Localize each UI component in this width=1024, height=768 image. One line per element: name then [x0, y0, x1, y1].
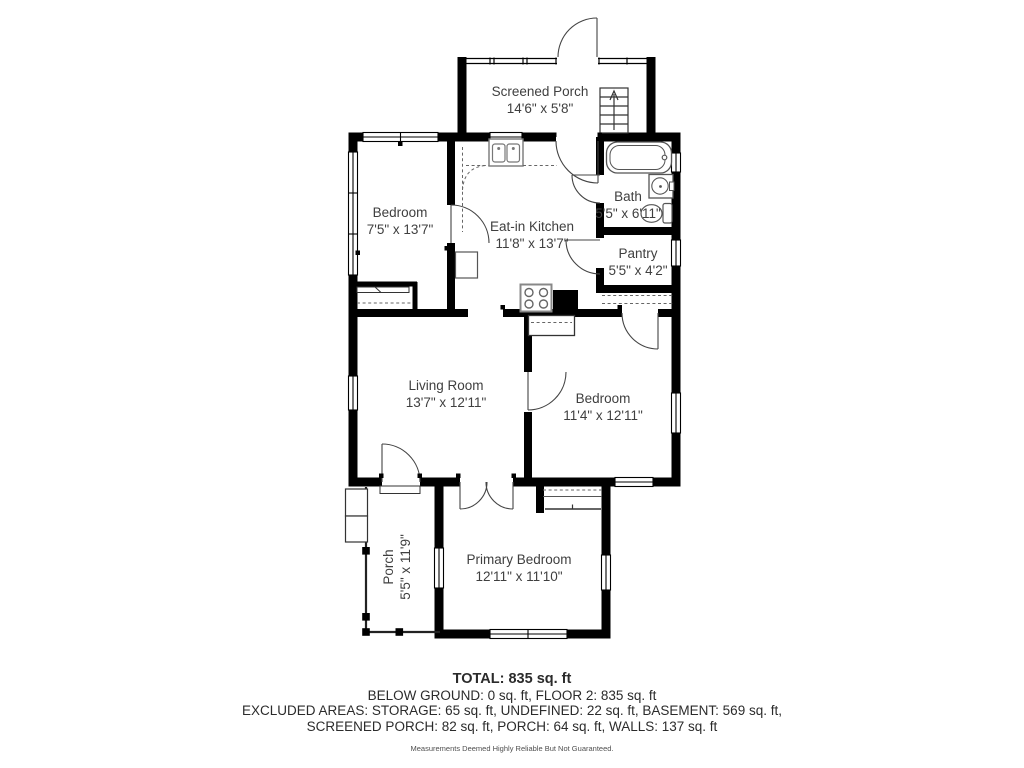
summary-excluded-2: SCREENED PORCH: 82 sq. ft, PORCH: 64 sq.… — [0, 719, 1024, 735]
room-label-pantry: Pantry 5'5" x 4'2" — [608, 245, 667, 279]
floor-plan-page: Screened Porch 14'6" x 5'8" Bedroom 7'5"… — [0, 0, 1024, 768]
room-name: Bath — [595, 188, 661, 205]
window — [349, 376, 358, 410]
primary-closet — [543, 490, 602, 509]
room-label-living-room: Living Room 13'7" x 12'11" — [406, 377, 487, 411]
room-dims: 12'11" x 11'10" — [466, 568, 571, 585]
room-name: Living Room — [406, 377, 487, 394]
room-dims: 5'5" x 6'11" — [595, 205, 661, 222]
door-bedroom2 — [528, 372, 566, 410]
window — [363, 133, 438, 142]
door-french-left — [460, 482, 487, 509]
door-living-porch — [382, 444, 420, 482]
room-dims: 5'5" x 4'2" — [608, 262, 667, 279]
room-dims: 7'5" x 13'7" — [367, 221, 434, 238]
door-bedroom2-closet — [622, 313, 658, 349]
window — [672, 393, 681, 433]
summary-excluded-1: EXCLUDED AREAS: STORAGE: 65 sq. ft, UNDE… — [0, 703, 1024, 719]
bathtub — [607, 142, 672, 173]
kitchen-counter-black — [553, 290, 578, 314]
room-name: Screened Porch — [492, 83, 589, 100]
summary-disclaimer: Measurements Deemed Highly Reliable But … — [0, 741, 1024, 757]
room-name: Bedroom — [563, 390, 643, 407]
staircase — [600, 88, 628, 133]
window — [672, 240, 681, 266]
door-french-right — [486, 482, 513, 509]
summary-below-ground: BELOW GROUND: 0 sq. ft, FLOOR 2: 835 sq.… — [0, 688, 1024, 704]
door-threshold — [380, 486, 420, 494]
screen-wall — [458, 58, 655, 65]
window — [490, 630, 567, 639]
room-label-porch: Porch 5'5" x 11'9" — [380, 534, 414, 600]
window — [435, 548, 444, 588]
summary-total: TOTAL: 835 sq. ft — [0, 672, 1024, 688]
wall-ticks — [356, 133, 623, 479]
room-name: Porch — [380, 534, 397, 600]
room-label-bedroom-1: Bedroom 7'5" x 13'7" — [367, 204, 434, 238]
room-name: Bedroom — [367, 204, 434, 221]
closet-walls — [353, 282, 417, 311]
window — [615, 478, 653, 487]
room-label-eat-in-kitchen: Eat-in Kitchen 11'8" x 13'7" — [490, 218, 574, 252]
room-name: Eat-in Kitchen — [490, 218, 574, 235]
area-summary: TOTAL: 835 sq. ft BELOW GROUND: 0 sq. ft… — [0, 672, 1024, 757]
stove — [521, 285, 552, 312]
kitchen-sink — [489, 139, 523, 166]
room-dims: 13'7" x 12'11" — [406, 394, 487, 411]
room-name: Pantry — [608, 245, 667, 262]
room-dims: 11'8" x 13'7" — [490, 235, 574, 252]
kitchen-cabinet — [456, 252, 478, 278]
bedroom1-closet — [357, 287, 411, 303]
room-dims: 11'4" x 12'11" — [563, 407, 643, 424]
window — [349, 152, 358, 275]
room-label-primary-bedroom: Primary Bedroom 12'11" x 11'10" — [466, 551, 571, 585]
door-kitchen-entry — [556, 141, 598, 183]
room-name: Primary Bedroom — [466, 551, 571, 568]
bedroom2-closet-top — [602, 296, 673, 304]
room-label-bath: Bath 5'5" x 6'11" — [595, 188, 661, 222]
room-label-bedroom-2: Bedroom 11'4" x 12'11" — [563, 390, 643, 424]
window — [602, 555, 611, 590]
door-porch-entry — [558, 18, 597, 57]
room-label-screened-porch: Screened Porch 14'6" x 5'8" — [492, 83, 589, 117]
window — [672, 153, 681, 172]
porch-steps — [346, 489, 368, 542]
door-bedroom1 — [451, 205, 489, 243]
room-dims: 5'5" x 11'9" — [397, 534, 414, 600]
bedroom2-closet-left — [529, 316, 575, 336]
room-dims: 14'6" x 5'8" — [492, 100, 589, 117]
